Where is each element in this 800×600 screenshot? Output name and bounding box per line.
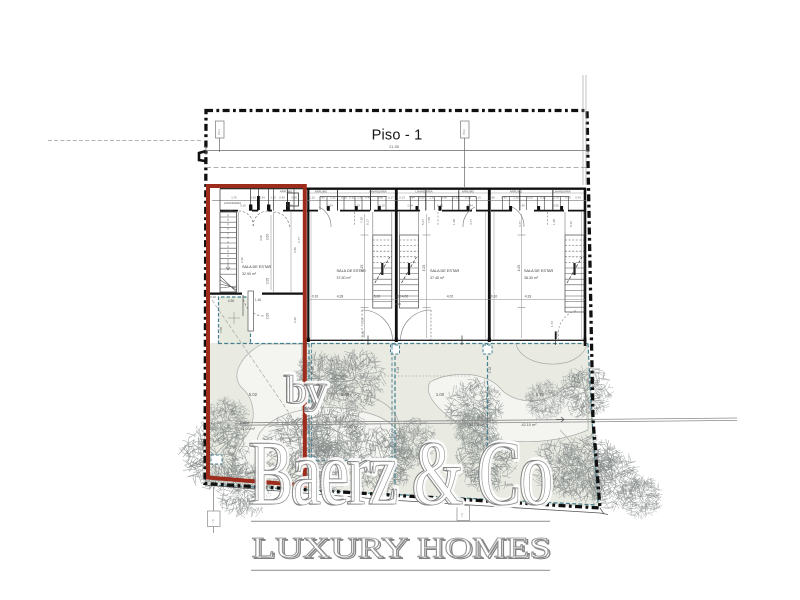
svg-text:4.33: 4.33 <box>525 295 532 299</box>
svg-text:ARRUMO: ARRUMO <box>462 190 475 194</box>
svg-text:5.00: 5.00 <box>341 392 350 397</box>
svg-text:P.02: P.02 <box>462 129 466 135</box>
svg-text:0.10: 0.10 <box>312 295 319 299</box>
svg-text:0.20: 0.20 <box>565 196 571 200</box>
svg-text:4.30: 4.30 <box>228 299 235 303</box>
svg-text:SALA DE ESTAR: SALA DE ESTAR <box>524 269 554 273</box>
svg-text:5.18: 5.18 <box>396 367 400 374</box>
svg-text:0.34: 0.34 <box>575 196 581 200</box>
svg-text:5.00: 5.00 <box>374 295 381 299</box>
svg-text:0.68: 0.68 <box>341 196 347 200</box>
svg-text:ARRUMO: ARRUMO <box>315 190 328 194</box>
svg-text:1.15: 1.15 <box>513 196 519 200</box>
svg-text:P.01: P.01 <box>217 129 221 135</box>
svg-text:1.46: 1.46 <box>255 298 261 302</box>
svg-text:2.60: 2.60 <box>293 317 297 323</box>
svg-text:0.13: 0.13 <box>399 196 405 200</box>
svg-text:1.70: 1.70 <box>553 196 559 200</box>
svg-text:LAVANDARIA: LAVANDARIA <box>415 190 432 194</box>
svg-text:0.45: 0.45 <box>319 196 325 200</box>
svg-text:0.80: 0.80 <box>293 247 297 253</box>
svg-text:0.55: 0.55 <box>553 203 559 207</box>
svg-text:37.45 m²: 37.45 m² <box>430 276 445 280</box>
svg-text:0.30: 0.30 <box>527 196 533 200</box>
svg-text:0.34: 0.34 <box>259 196 265 200</box>
svg-text:2.40: 2.40 <box>519 203 525 207</box>
svg-text:0.10: 0.10 <box>210 295 216 299</box>
svg-text:2.40: 2.40 <box>240 257 244 263</box>
svg-text:1.38: 1.38 <box>452 219 456 225</box>
svg-text:LAVANDARIA: LAVANDARIA <box>553 190 570 194</box>
svg-text:1.05: 1.05 <box>361 318 365 324</box>
svg-text:4.25: 4.25 <box>517 265 521 272</box>
svg-text:0.84: 0.84 <box>409 196 415 200</box>
svg-text:7.38: 7.38 <box>230 409 234 416</box>
svg-text:37.50 m²: 37.50 m² <box>337 276 352 280</box>
svg-text:0.10: 0.10 <box>491 295 498 299</box>
svg-text:0.55: 0.55 <box>453 196 459 200</box>
svg-text:3.60: 3.60 <box>259 235 263 241</box>
svg-text:0.43: 0.43 <box>501 196 507 200</box>
svg-text:0.10: 0.10 <box>379 203 385 207</box>
svg-text:1.14: 1.14 <box>429 196 435 200</box>
svg-text:1.15: 1.15 <box>309 196 315 200</box>
svg-text:0.17: 0.17 <box>388 196 394 200</box>
svg-text:0.77: 0.77 <box>297 237 301 243</box>
svg-text:7.28: 7.28 <box>427 217 431 223</box>
svg-text:4.00: 4.00 <box>402 295 409 299</box>
svg-text:SALA DE ESTAR: SALA DE ESTAR <box>242 265 272 269</box>
svg-text:4.02: 4.02 <box>447 295 454 299</box>
svg-text:ARRUMO: ARRUMO <box>510 190 523 194</box>
svg-text:1.34: 1.34 <box>407 203 413 207</box>
svg-text:0.38: 0.38 <box>465 196 471 200</box>
svg-text:by: by <box>287 367 327 412</box>
svg-text:21.35: 21.35 <box>389 145 399 149</box>
svg-text:0.48: 0.48 <box>365 196 371 200</box>
svg-text:5.71: 5.71 <box>536 392 545 397</box>
svg-text:38.30 m²: 38.30 m² <box>524 276 539 280</box>
svg-text:0.05: 0.05 <box>361 331 365 337</box>
svg-text:5.02: 5.02 <box>249 392 258 397</box>
svg-text:1.04: 1.04 <box>327 203 333 207</box>
svg-text:5.12: 5.12 <box>569 221 573 227</box>
svg-text:1.38: 1.38 <box>552 219 556 225</box>
svg-text:0.68: 0.68 <box>377 196 383 200</box>
svg-text:0.48: 0.48 <box>437 203 443 207</box>
svg-text:0.31: 0.31 <box>330 196 336 200</box>
svg-text:0.40: 0.40 <box>279 196 285 200</box>
svg-text:0.05: 0.05 <box>555 331 559 337</box>
svg-text:LAVANDARIA: LAVANDARIA <box>224 201 241 205</box>
svg-text:0.10: 0.10 <box>395 302 401 306</box>
svg-text:0.30: 0.30 <box>349 196 355 200</box>
svg-text:0.20: 0.20 <box>250 196 256 200</box>
svg-text:4.77: 4.77 <box>469 219 473 225</box>
svg-text:0.68: 0.68 <box>489 196 495 200</box>
svg-text:LAVANDARIA: LAVANDARIA <box>369 190 386 194</box>
svg-text:4.77: 4.77 <box>518 221 522 227</box>
svg-text:1.70: 1.70 <box>231 196 237 200</box>
svg-text:4.25: 4.25 <box>422 265 426 272</box>
svg-text:1.72: 1.72 <box>550 321 554 327</box>
svg-text:0.98: 0.98 <box>441 196 447 200</box>
svg-text:4.25: 4.25 <box>360 265 364 272</box>
svg-text:0.10: 0.10 <box>395 295 402 299</box>
svg-text:3.13: 3.13 <box>354 203 360 207</box>
svg-text:3.60: 3.60 <box>266 234 270 241</box>
svg-text:0.60: 0.60 <box>419 196 425 200</box>
svg-text:0.16: 0.16 <box>240 203 246 207</box>
svg-text:1.00: 1.00 <box>436 392 445 397</box>
svg-text:2.60: 2.60 <box>266 313 270 320</box>
svg-text:0.84: 0.84 <box>467 203 473 207</box>
svg-text:Baerz & Co: Baerz & Co <box>251 422 553 524</box>
svg-text:Piso - 1: Piso - 1 <box>372 128 423 144</box>
svg-text:1.34: 1.34 <box>357 196 363 200</box>
svg-text:I.S: I.S <box>211 519 215 523</box>
svg-text:LUXURY HOMES: LUXURY HOMES <box>252 533 551 564</box>
svg-text:0.52: 0.52 <box>540 196 546 200</box>
svg-text:7.28: 7.28 <box>360 217 364 223</box>
svg-text:2.88: 2.88 <box>219 327 223 333</box>
svg-text:4.28: 4.28 <box>337 295 344 299</box>
svg-text:5.17: 5.17 <box>366 219 370 225</box>
svg-text:5.17: 5.17 <box>421 219 425 225</box>
svg-text:SALA DE ESTAR: SALA DE ESTAR <box>430 269 460 273</box>
svg-text:32.90 m²: 32.90 m² <box>242 272 257 276</box>
svg-text:5.18: 5.18 <box>488 367 492 374</box>
svg-text:0.13: 0.13 <box>475 196 481 200</box>
svg-text:3.05: 3.05 <box>266 278 270 285</box>
